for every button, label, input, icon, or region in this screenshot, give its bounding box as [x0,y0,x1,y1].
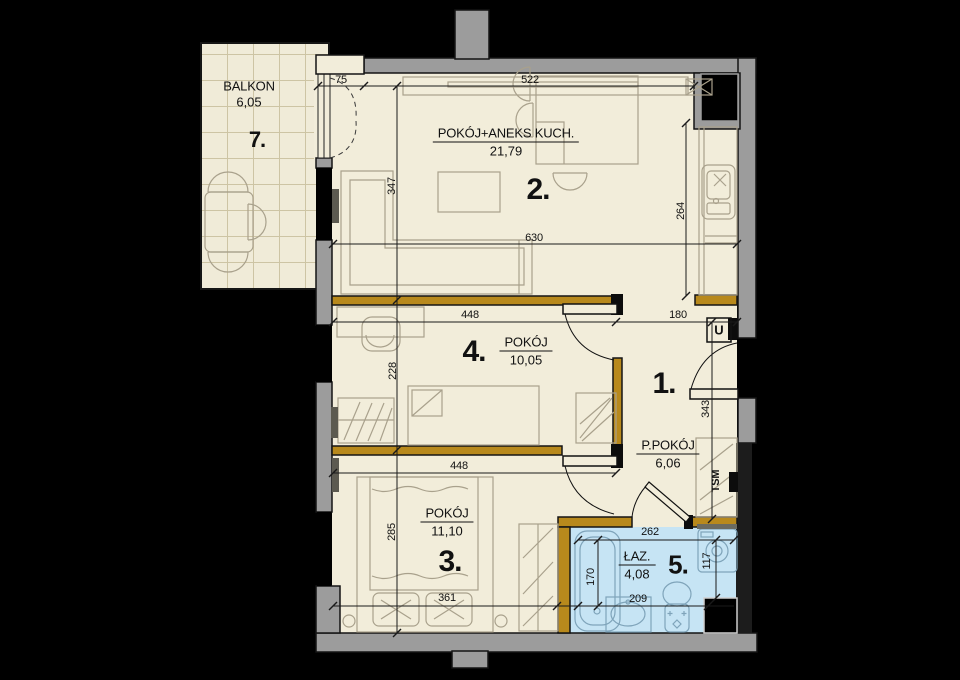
dim-room3-width: 448 [450,460,468,472]
dim-living-left: 347 [386,177,398,195]
room-label-bedroom: POKÓJ 11,10 [420,506,473,539]
dim-living-width: 630 [525,232,543,244]
electrical-panel-icon [729,472,738,492]
dim-bath-left: 170 [585,568,597,586]
room-area: 10,05 [510,353,543,368]
room-name: POKÓJ [499,335,552,352]
dim-hall-height: 343 [700,400,712,418]
floor-plan: POKÓJ+ANEKS KUCH. 21,79 2. POKÓJ 10,05 4… [0,0,960,680]
room-label-bathroom: ŁAZ. 4,08 [619,549,656,582]
room-area: 6,05 [236,95,261,110]
window-bedroom-small [316,325,332,382]
room-number-bathroom: 5. [668,550,688,581]
tsm-label: TSM [710,470,722,493]
dim-balcony-door: 75 [335,74,347,86]
shaft-bottom-icon [704,598,737,633]
dim-hall-width: 180 [669,309,687,321]
dim-room4-width: 448 [461,309,479,321]
dim-bath-bottom: 209 [629,593,647,605]
room-name: POKÓJ [420,506,473,523]
dim-room4-height: 228 [387,362,399,380]
room-label-balcony: BALKON 6,05 [223,79,275,110]
room-area: 11,10 [431,524,463,539]
windows [316,168,332,586]
room-area: 4,08 [624,567,649,582]
room-name: P.POKÓJ [636,438,699,455]
window-living [316,168,332,240]
dim-room3-bottom: 361 [438,592,456,604]
window-bedroom [317,512,331,586]
room-label-living: POKÓJ+ANEKS KUCH. 21,79 [433,126,579,159]
room-area: 21,79 [490,144,523,159]
dim-kitchen-height: 264 [675,202,687,220]
balcony-chair-icon [208,172,266,272]
room-name: POKÓJ+ANEKS KUCH. [433,126,579,143]
balcony-table-icon [205,192,253,252]
room-number-bedroom-small: 4. [462,335,485,369]
room-label-bedroom-small: POKÓJ 10,05 [499,335,552,368]
room-number-hall: 1. [652,367,675,401]
room-name: ŁAZ. [619,549,656,566]
dim-living-top: 522 [521,74,539,86]
room-number-living: 2. [526,173,549,207]
dim-bath-top: 262 [641,526,659,538]
room-label-hall: P.POKÓJ 6,06 [636,438,699,471]
right-wall-dark [736,443,752,633]
dim-room3-height: 285 [386,523,398,541]
entry-unit-label: U [714,323,723,338]
shelf-icon [697,524,737,529]
room-name: BALKON [223,79,275,94]
balcony-door [316,55,364,74]
shaft-top-icon [701,74,738,121]
room-number-bedroom: 3. [438,545,461,579]
room-area: 6,06 [655,456,680,471]
room-number-balcony: 7. [249,127,265,153]
balcony-window [318,74,330,158]
dim-bath-right: 117 [701,553,713,570]
